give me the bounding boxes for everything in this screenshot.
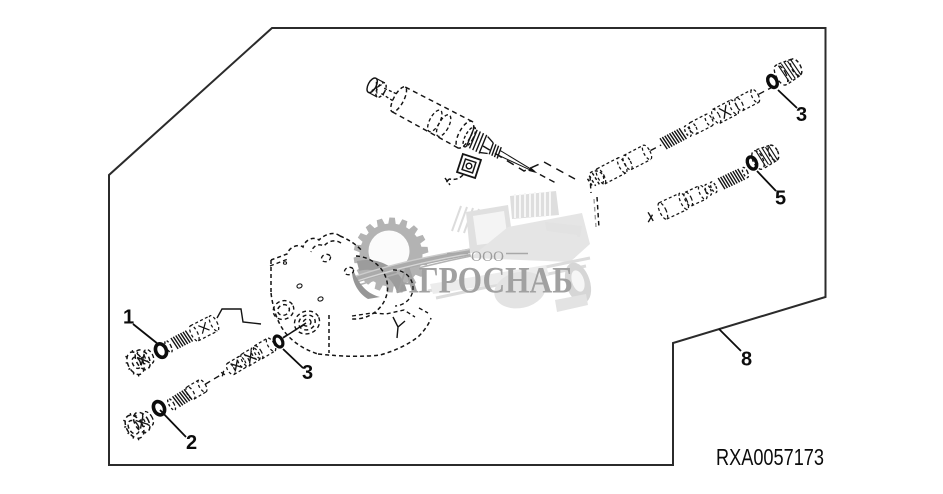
- svg-text:АГРОСНАБ: АГРОСНАБ: [396, 261, 573, 302]
- svg-text:3: 3: [302, 362, 313, 384]
- svg-text:8: 8: [741, 349, 752, 371]
- svg-text:2: 2: [186, 432, 197, 454]
- svg-text:5: 5: [775, 188, 786, 210]
- svg-text:RXA0057173: RXA0057173: [716, 444, 824, 470]
- svg-text:3: 3: [796, 104, 807, 126]
- svg-text:1: 1: [123, 307, 134, 329]
